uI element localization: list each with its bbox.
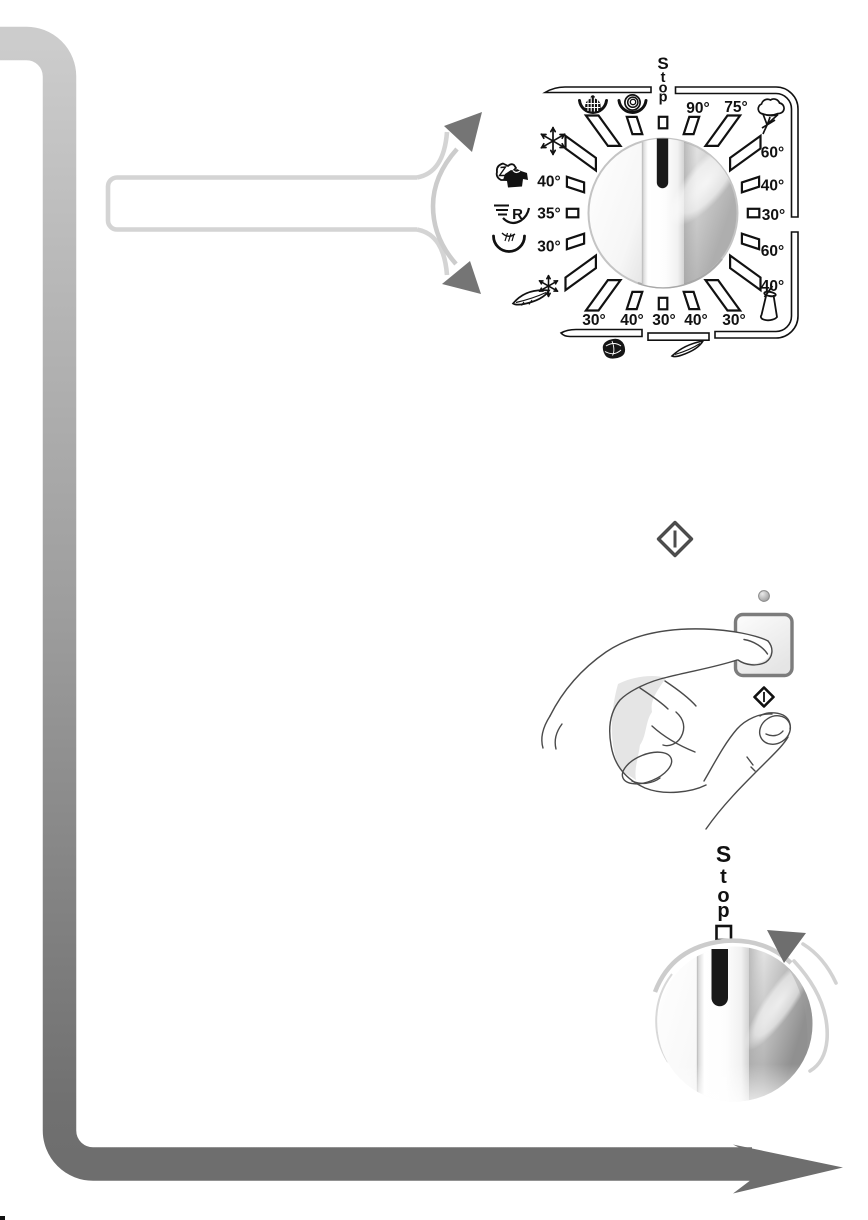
svg-text:p: p	[659, 90, 668, 106]
svg-text:40°: 40°	[684, 312, 707, 329]
svg-text:75°: 75°	[724, 99, 747, 116]
svg-text:30°: 30°	[722, 312, 745, 329]
svg-text:60°: 60°	[761, 145, 784, 162]
svg-text:p: p	[717, 900, 729, 922]
svg-text:30°: 30°	[762, 207, 785, 224]
svg-text:30°: 30°	[582, 312, 605, 329]
svg-text:90°: 90°	[686, 100, 709, 117]
svg-text:40°: 40°	[537, 174, 560, 191]
svg-text:30°: 30°	[537, 239, 560, 256]
svg-text:35°: 35°	[537, 206, 560, 223]
svg-text:30°: 30°	[652, 312, 675, 329]
svg-text:S: S	[716, 841, 731, 867]
svg-text:40°: 40°	[761, 178, 784, 195]
svg-text:40°: 40°	[620, 312, 643, 329]
svg-text:60°: 60°	[761, 243, 784, 260]
